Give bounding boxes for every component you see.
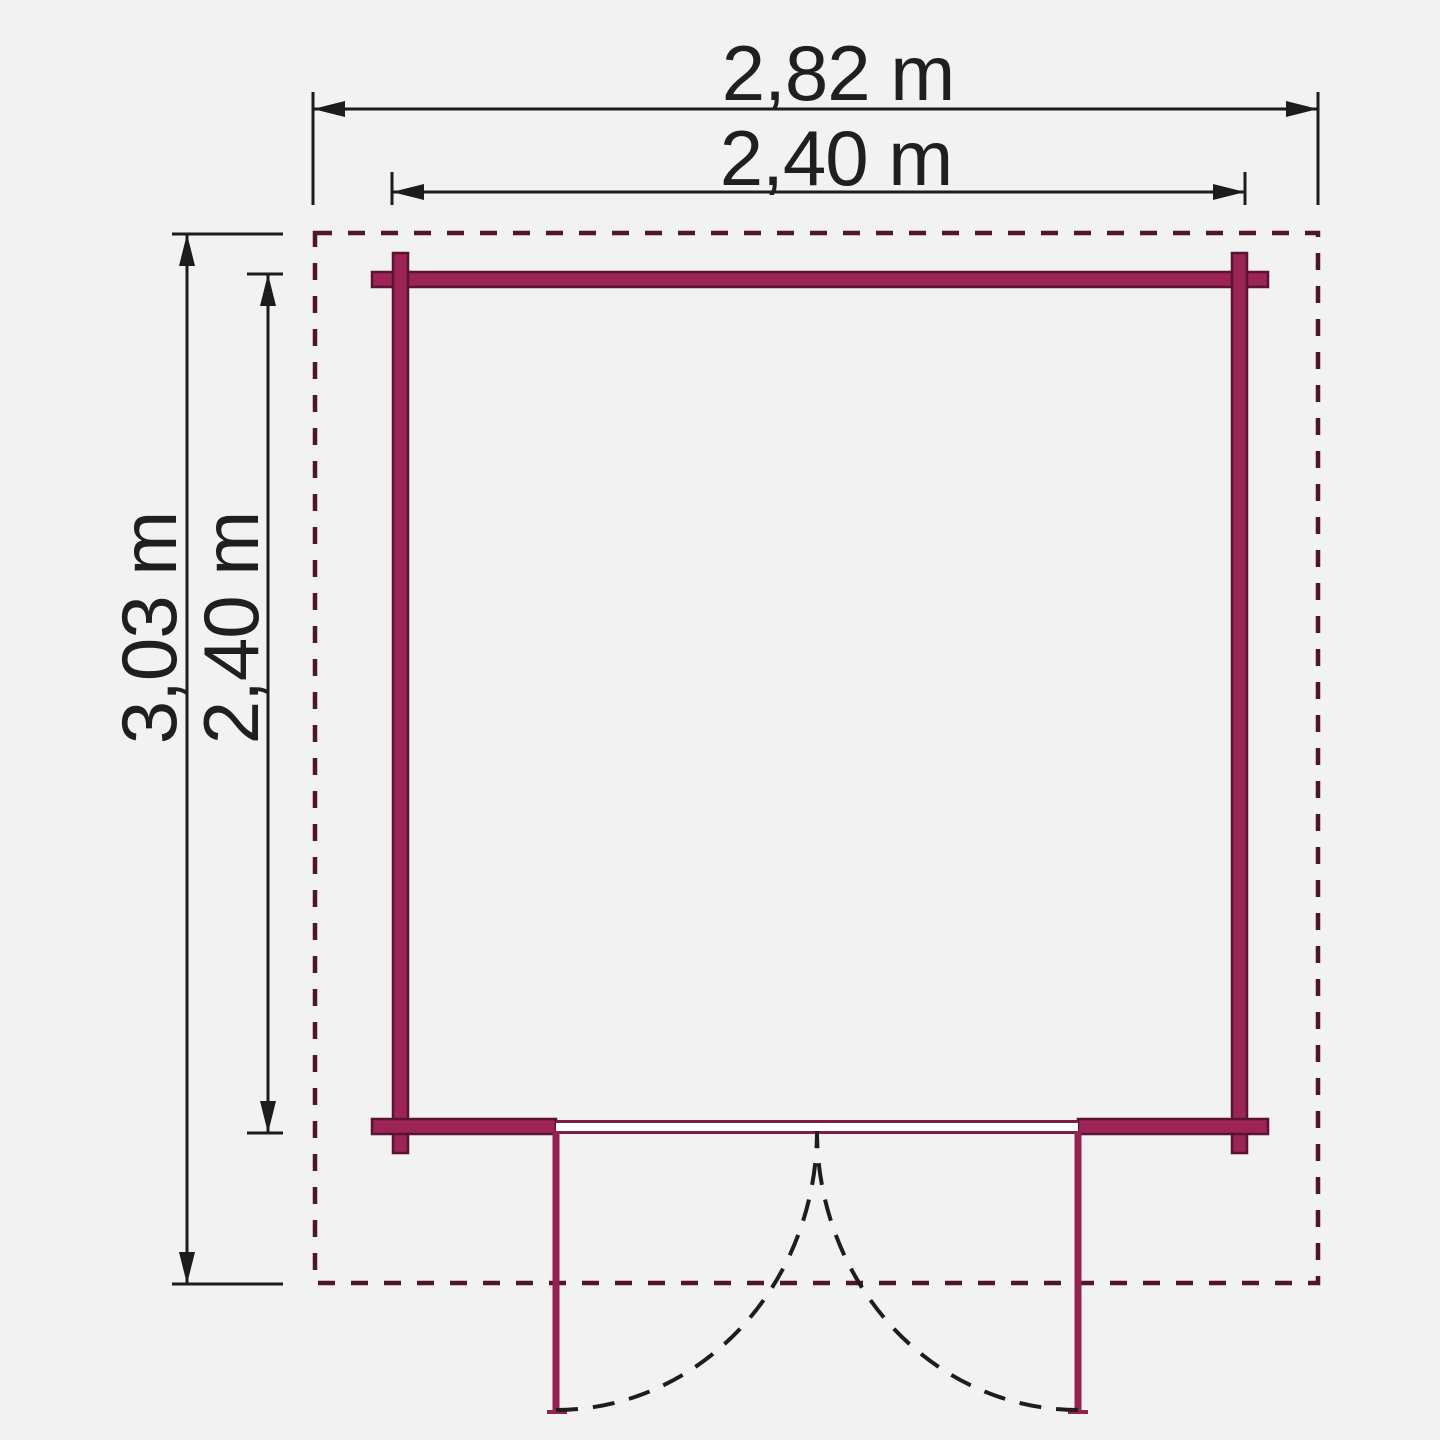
wall-top xyxy=(372,272,1268,287)
dimension-label-roof-width: 2,82 m xyxy=(722,29,954,117)
wall-bottom-right xyxy=(1078,1119,1268,1134)
door-leaf-right xyxy=(1075,1131,1082,1412)
wall-left xyxy=(393,253,408,1153)
floor-plan-drawing: 2,82 m 2,40 m 3,03 m 2,40 m xyxy=(0,0,1440,1440)
door-leaf-left xyxy=(553,1131,560,1412)
dimension-label-wall-depth: 2,40 m xyxy=(187,512,275,744)
dimension-label-wall-width: 2,40 m xyxy=(720,114,952,202)
wall-bottom-left xyxy=(372,1119,556,1134)
wall-right xyxy=(1232,253,1247,1153)
floor-plan-canvas: 2,82 m 2,40 m 3,03 m 2,40 m xyxy=(0,0,1440,1440)
dimension-label-roof-depth: 3,03 m xyxy=(105,512,193,744)
